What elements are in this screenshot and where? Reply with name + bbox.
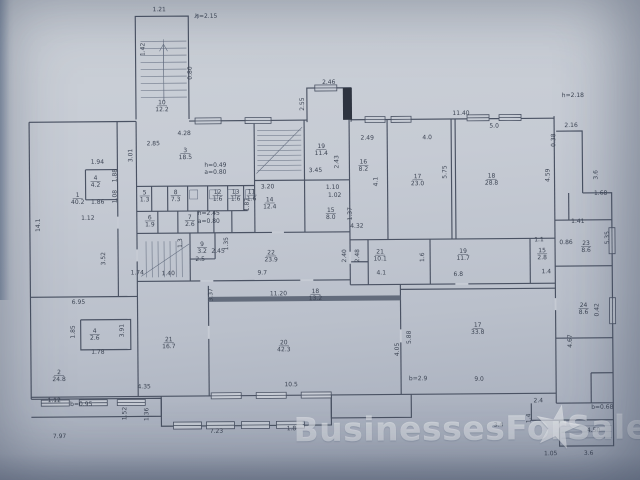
room-label: 2110.1 <box>373 248 387 262</box>
dimension-label: 2.43 <box>333 155 340 169</box>
room-label: 224.8 <box>52 369 66 383</box>
room-label: 1911.7 <box>456 248 470 262</box>
wall <box>556 131 582 193</box>
wall <box>29 122 31 399</box>
dimension-label: 11.40 <box>452 110 469 117</box>
dimension-label: 0.80 <box>187 66 194 80</box>
dimension-label: 2.49 <box>360 135 374 142</box>
dimension-label: 1.37 <box>347 207 354 221</box>
dimension-label: 1.68 <box>594 190 608 197</box>
room-label: 2042.3 <box>277 339 291 353</box>
room-label: 168.2 <box>359 159 369 173</box>
dimension-label: 3.45 <box>309 167 323 174</box>
wall <box>30 296 137 297</box>
dimension-label: 1.85 <box>70 325 77 339</box>
dimension-label: 3.4 <box>494 422 504 429</box>
dimension-label: 4.50 <box>587 427 601 434</box>
wall <box>29 121 136 122</box>
dimension-label: 11.20 <box>270 290 287 297</box>
dimension-label: 2.48 <box>354 249 361 263</box>
wall <box>331 394 411 418</box>
dimension-label: 9.7 <box>257 269 267 276</box>
dimension-label: 6.95 <box>72 299 86 306</box>
stair-or-fixture <box>159 44 167 99</box>
dimension-label: 1.8 <box>287 425 297 432</box>
dimension-label: 14.1 <box>35 218 42 232</box>
room-label: 1012.2 <box>155 99 169 113</box>
dimension-label: 2.85 <box>147 140 161 147</box>
room-label: 1828.8 <box>485 173 499 187</box>
dimension-label: 5.88 <box>406 330 413 344</box>
room-label: 318.5 <box>179 147 193 161</box>
dimension-label: 7.97 <box>53 433 67 440</box>
dimension-label: 0.38 <box>550 133 557 147</box>
wall <box>350 283 555 285</box>
room-label: 158.0 <box>326 207 336 221</box>
dimension-label: 4.32 <box>350 223 364 230</box>
room-label: 2116.7 <box>162 336 176 350</box>
wall <box>117 122 118 297</box>
dimension-label: 5.35 <box>604 231 611 245</box>
dimension-label: 1.4 <box>541 268 551 275</box>
room-label: 1911.4 <box>315 143 329 157</box>
wall <box>137 186 255 187</box>
dimension-label: 9.0 <box>474 376 484 383</box>
walls-layer <box>28 13 613 451</box>
room-label: 44.2 <box>91 175 101 189</box>
wall <box>137 211 248 212</box>
dimension-label: 2.4 <box>533 397 543 404</box>
dimension-label: 1.1 <box>534 236 544 243</box>
dimension-label: 10.5 <box>284 381 298 388</box>
dimension-label: 4.35 <box>137 383 151 390</box>
dimension-label: 4.28 <box>177 130 191 137</box>
dimension-label: 2.55 <box>299 97 306 111</box>
wall <box>304 120 305 232</box>
dimension-label: 1.40 <box>162 270 176 277</box>
dimension-label: 3.01 <box>127 149 134 163</box>
wall <box>158 211 232 234</box>
room-label: 131.6 <box>231 189 241 203</box>
room-label: 140.2 <box>71 192 85 206</box>
dimension-label: 4.0 <box>422 134 432 141</box>
wall <box>451 119 456 239</box>
wall <box>387 119 388 239</box>
scanned-floorplan-photo: 1012.2140.244.2318.551.387.3121.6131.611… <box>0 0 640 480</box>
dimension-label: b=2.9 <box>409 375 428 382</box>
dimension-label: 1.36 <box>143 407 150 421</box>
dimension-label: h=2.45 <box>198 210 220 217</box>
dimension-label: 1.12 <box>81 215 95 222</box>
dimension-label: h=2.18 <box>562 92 584 99</box>
dimension-label: b=0.68 <box>591 404 613 411</box>
room-label: 61.9 <box>145 214 155 228</box>
dimension-label: 2.46 <box>322 79 336 86</box>
dimension-label: 1.3 <box>177 238 184 248</box>
dimension-label: 1.08 <box>112 190 119 204</box>
dimension-label: 1.4 <box>525 413 532 423</box>
dimension-label: 1.10 <box>326 184 340 191</box>
dimension-label: a=0.80 <box>204 169 226 176</box>
solid-fill <box>343 88 352 120</box>
dimension-label: a=0.80 <box>198 218 220 225</box>
dimension-label: 3.20 <box>261 183 275 190</box>
room-label: 1723.0 <box>411 173 425 187</box>
dimension-label: 1.87 <box>244 198 251 212</box>
photo-left-edge <box>0 0 14 300</box>
wall <box>255 180 350 181</box>
room-label: 2223.9 <box>264 249 278 263</box>
dimension-label: 3.6 <box>592 170 599 180</box>
dimension-label: 3.37 <box>207 288 214 302</box>
dimension-label: 5.75 <box>441 165 448 179</box>
dimension-label: 1.88 <box>111 169 118 183</box>
dimension-label: 4.05 <box>394 343 401 357</box>
photo-bottom-shadow <box>0 454 640 480</box>
room-label: 42.6 <box>90 328 100 342</box>
dimension-label: 2.5 <box>195 256 205 263</box>
room-label: 152.8 <box>537 247 547 261</box>
dimension-label: 4.59 <box>544 168 551 182</box>
room-labels-layer: 1012.2140.244.2318.551.387.3121.6131.611… <box>50 96 592 383</box>
wall <box>31 393 556 397</box>
dimension-label: 1.21 <box>152 6 166 13</box>
dimension-label: 1.41 <box>571 218 585 225</box>
dimension-label: 0.42 <box>594 303 601 317</box>
dimension-label: 2.16 <box>564 122 578 129</box>
dimension-label: 1.12 <box>48 397 62 404</box>
dimension-label: 1.02 <box>328 192 342 199</box>
wall <box>400 288 555 289</box>
dimension-label: 1.6 <box>419 252 426 262</box>
dimension-label: 6.8 <box>453 271 463 278</box>
room-label: 1813.2 <box>309 288 323 302</box>
wall <box>554 116 556 403</box>
room-label: 1412.4 <box>263 196 277 210</box>
detail-layer <box>139 11 611 442</box>
floorplan-drawing: 1012.2140.244.2318.551.387.3121.6131.611… <box>0 0 640 480</box>
dimension-label: 4.1 <box>376 269 386 276</box>
dimension-label: 3.52 <box>100 252 107 266</box>
dimension-label: 2.40 <box>341 249 348 263</box>
dimension-label: 5.0 <box>489 123 499 130</box>
room-label: 51.3 <box>140 189 150 203</box>
wall <box>254 121 255 233</box>
room-label: 121.6 <box>213 189 223 203</box>
room-label: 248.6 <box>579 302 589 316</box>
room-label: 87.3 <box>171 189 181 203</box>
solid-fill <box>208 295 400 302</box>
room-label: 93.2 <box>197 241 207 255</box>
wall <box>137 280 350 282</box>
dimension-label: 0.86 <box>559 239 573 246</box>
dimension-label: 4.1 <box>373 177 380 187</box>
wall <box>137 232 350 234</box>
dimension-label: 1.35 <box>223 237 230 251</box>
dimension-label: 1.42 <box>139 42 146 56</box>
wall <box>350 238 555 240</box>
dimension-label: 4.67 <box>567 334 574 348</box>
dimension-label: 7.23 <box>210 428 224 435</box>
dimension-label: b=0.95 <box>70 401 92 408</box>
dimension-label: 3.91 <box>119 324 126 338</box>
dimension-label: 1.94 <box>91 159 105 166</box>
room-label: 238.6 <box>581 240 591 254</box>
dimension-label: 1.52 <box>121 407 128 421</box>
room-label: 72.6 <box>185 214 195 228</box>
dimension-label: 1.74 <box>131 269 145 276</box>
dimension-label: 1.78 <box>91 349 105 356</box>
room-label: 1733.8 <box>471 322 485 336</box>
dimension-label: h=2.15 <box>195 13 217 20</box>
dimension-label: 1.86 <box>91 199 105 206</box>
floorplan-paper: 1012.2140.244.2318.551.387.3121.6131.611… <box>0 0 640 480</box>
